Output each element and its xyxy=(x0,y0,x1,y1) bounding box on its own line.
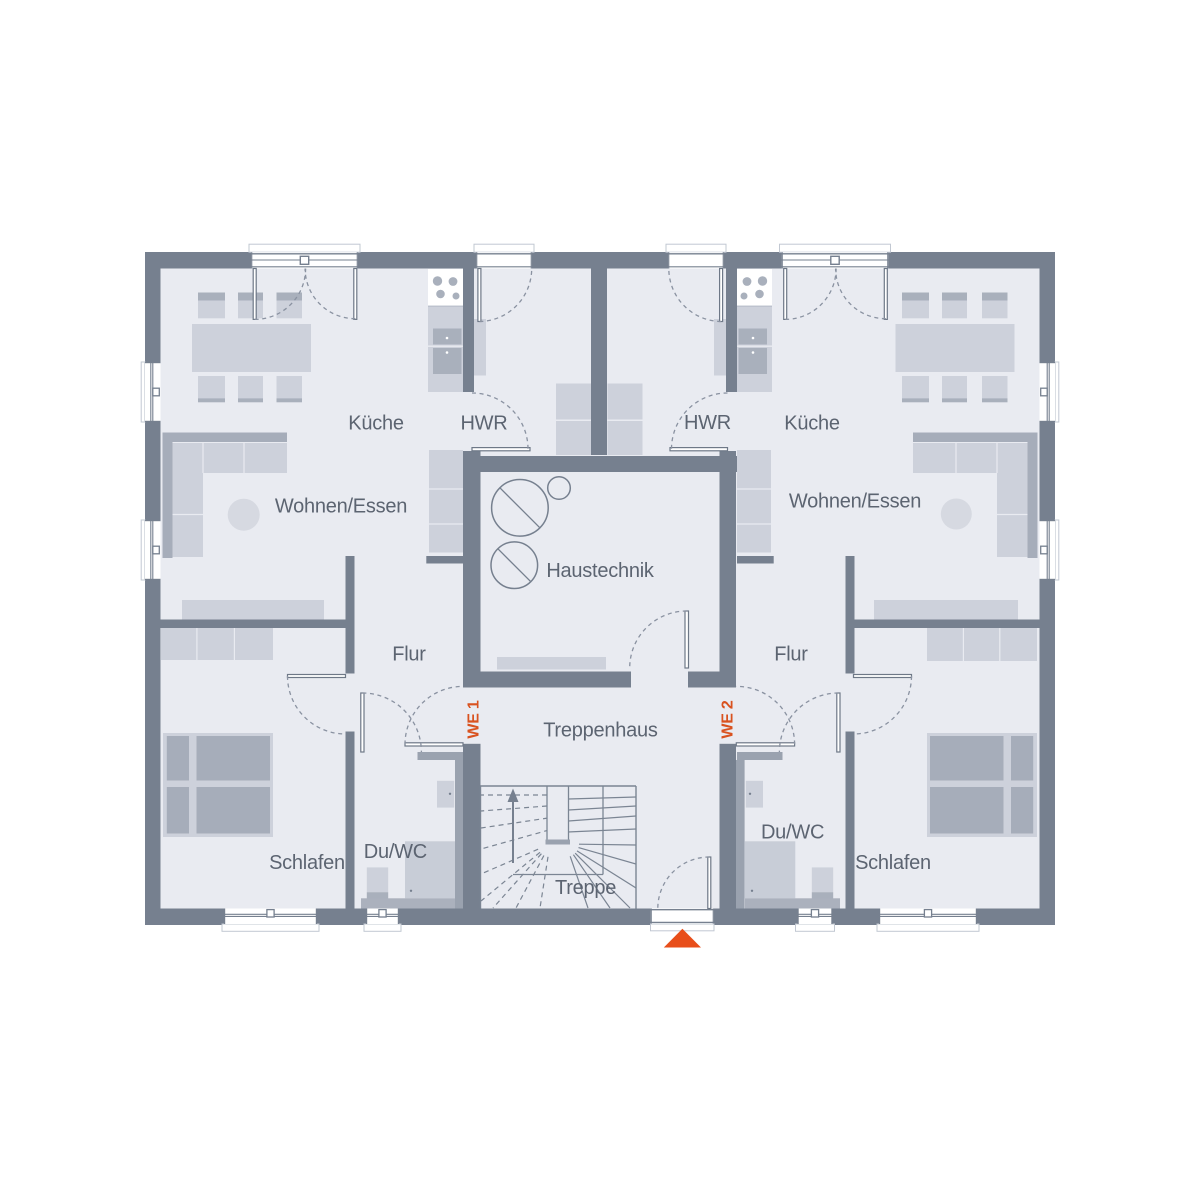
svg-text:HWR: HWR xyxy=(684,412,731,434)
svg-text:Flur: Flur xyxy=(392,644,426,666)
svg-text:Wohnen/Essen: Wohnen/Essen xyxy=(275,496,407,518)
svg-text:WE 1: WE 1 xyxy=(466,700,483,738)
svg-text:Wohnen/Essen: Wohnen/Essen xyxy=(789,491,921,513)
svg-text:Du/WC: Du/WC xyxy=(761,822,824,844)
svg-text:HWR: HWR xyxy=(460,413,507,435)
svg-text:Treppenhaus: Treppenhaus xyxy=(543,720,658,742)
svg-text:Haustechnik: Haustechnik xyxy=(546,560,655,582)
svg-text:Küche: Küche xyxy=(784,413,840,435)
svg-text:Schlafen: Schlafen xyxy=(855,852,931,874)
svg-text:Du/WC: Du/WC xyxy=(364,841,427,863)
svg-text:Küche: Küche xyxy=(348,413,404,435)
svg-text:Schlafen: Schlafen xyxy=(269,852,345,874)
svg-text:Flur: Flur xyxy=(774,644,808,666)
svg-text:Treppe: Treppe xyxy=(555,877,616,899)
svg-text:WE 2: WE 2 xyxy=(720,700,737,738)
